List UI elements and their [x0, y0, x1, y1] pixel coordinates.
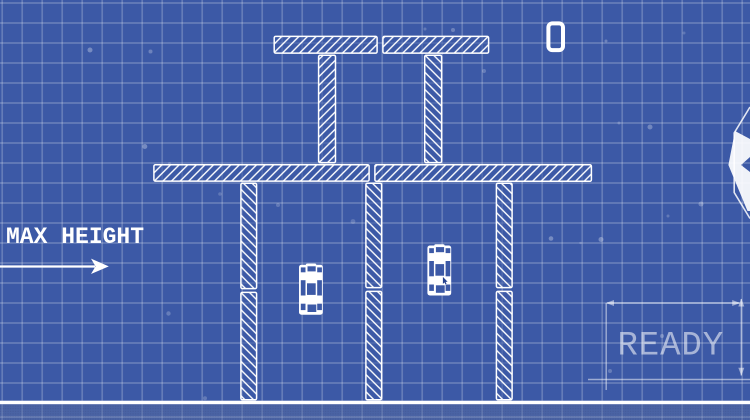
svg-text:READY: READY — [618, 328, 725, 366]
svg-text:MAX HEIGHT: MAX HEIGHT — [6, 224, 144, 250]
